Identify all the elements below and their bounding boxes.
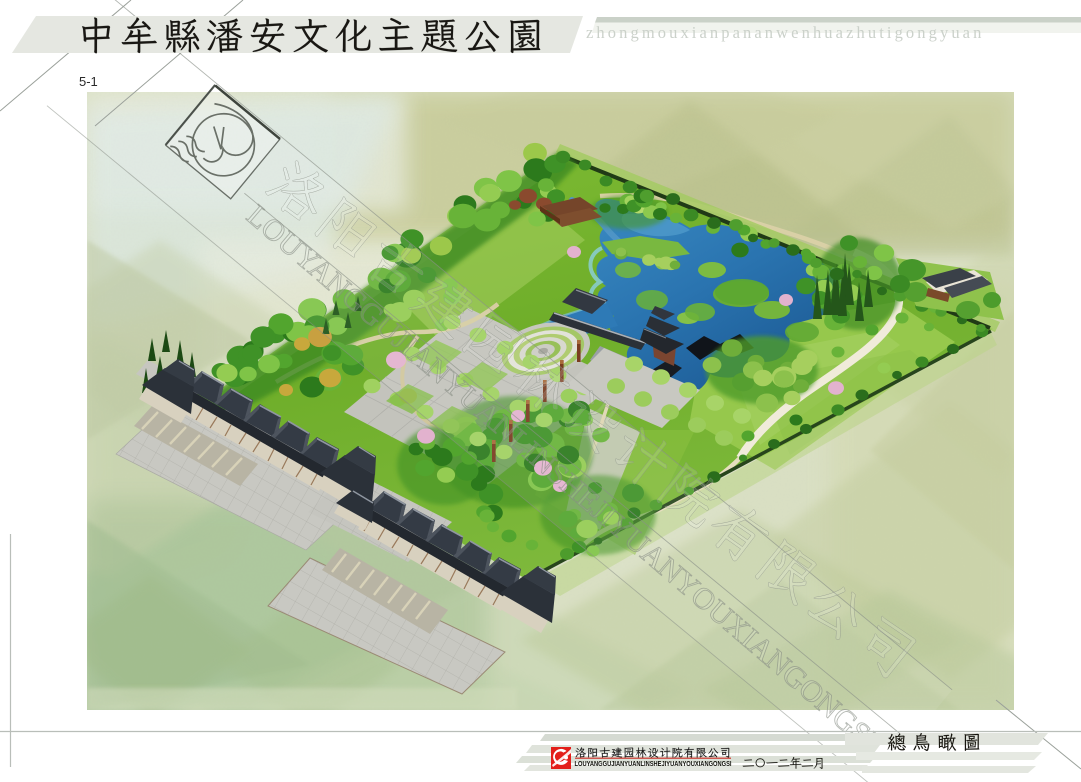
svg-text:LOUYANGGUJIANYUANLINSHEJIYUANY: LOUYANGGUJIANYUANLINSHEJIYUANYOUXIANGONG… [575,759,732,768]
svg-text:5-1: 5-1 [79,74,98,89]
svg-text:zhongmouxianpananwenhuazhutigo: zhongmouxianpananwenhuazhutigongyuan [586,23,984,42]
